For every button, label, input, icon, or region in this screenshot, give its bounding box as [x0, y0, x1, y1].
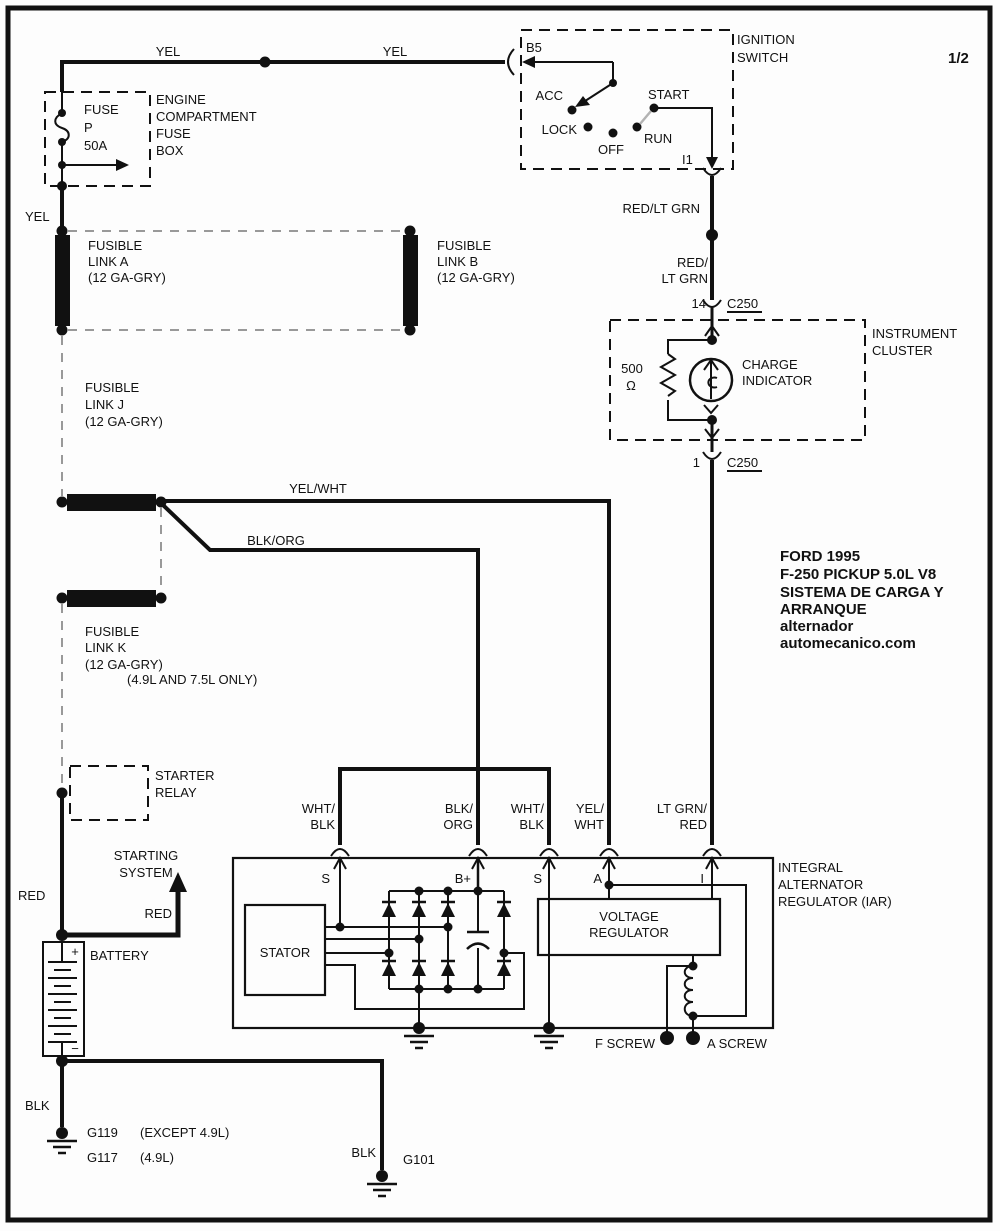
pos-start: START [648, 87, 689, 102]
off-contact [609, 129, 618, 138]
fusebox-name-3: FUSE [156, 126, 191, 141]
fusebox-name-2: COMPARTMENT [156, 109, 257, 124]
fuse-label-3: 50A [84, 138, 107, 153]
link-k-line1: FUSIBLE [85, 624, 140, 639]
pos-off: OFF [598, 142, 624, 157]
instrument-cluster: 500 Ω CHARGE INDICATOR INSTRUMENT CLUSTE… [610, 306, 957, 452]
terminal-a: A [593, 871, 602, 886]
starter-relay-label-1: STARTER [155, 768, 214, 783]
resistor-icon [661, 354, 675, 396]
c250-top-pin: 14 [692, 296, 706, 311]
link-k-note: (4.9L AND 7.5L ONLY) [127, 672, 257, 687]
iar-title-3: REGULATOR (IAR) [778, 894, 892, 909]
junction-dot [260, 57, 271, 68]
terminal-s1: S [321, 871, 330, 886]
stator: STATOR [245, 905, 524, 1009]
diode-icons-top [382, 902, 511, 917]
ignition-switch: B5 ACC LOCK OFF RUN START I1 IGNITION SW… [508, 30, 795, 169]
title-line-1: FORD 1995 [780, 548, 860, 565]
wiring-diagram-canvas: 1/2 YEL YEL FUSE P 50A ENGINE COMPARTMEN… [0, 0, 1000, 1231]
fusible-link-j: FUSIBLE LINK J (12 GA-GRY) [57, 380, 167, 511]
yel-wht-wire: YEL/WHT [163, 481, 609, 845]
lamp-label-1: CHARGE [742, 357, 798, 372]
ground-g117-note: (4.9L) [140, 1150, 174, 1165]
ground-g119-icon [56, 1127, 68, 1139]
arrow-to-acc-icon [575, 96, 590, 107]
acc-contact [568, 106, 577, 115]
label-yel-wht-b: WHT [574, 817, 604, 832]
wire-label-red-ltgrn: RED/LT GRN [622, 201, 700, 216]
link-b-line3: (12 GA-GRY) [437, 270, 515, 285]
label-wht-blk-1a: WHT/ [302, 801, 336, 816]
ground-g101: G101 [403, 1152, 435, 1167]
wire-label-yel-1: YEL [156, 44, 181, 59]
fuse-element-icon [55, 113, 69, 142]
title-line-2: F-250 PICKUP 5.0L V8 [780, 566, 936, 583]
battery-negative-wires: BLK G119 (EXCEPT 4.9L) G117 (4.9L) BLK G… [25, 1055, 435, 1196]
diode-icons-bottom [382, 961, 511, 976]
label-wht-blk-2a: WHT/ [511, 801, 545, 816]
ground-icon-2 [543, 1022, 555, 1034]
ground-icon [413, 1022, 425, 1034]
iar-title-2: ALTERNATOR [778, 877, 863, 892]
ignition-title-2: SWITCH [737, 50, 788, 65]
link-a-line2: LINK A [88, 254, 129, 269]
pos-run: RUN [644, 131, 672, 146]
terminal-s2: S [533, 871, 542, 886]
yel-feed-wire: YEL YEL [62, 44, 505, 92]
pin-i1: I1 [682, 152, 693, 167]
title-line-6: automecanico.com [780, 635, 916, 652]
link-a-line1: FUSIBLE [88, 238, 143, 253]
wire-label-blk-right: BLK [351, 1145, 376, 1160]
battery-label: BATTERY [90, 948, 149, 963]
wire-label-red-2: RED [145, 906, 172, 921]
wire-label-red-slash: RED/ [677, 255, 708, 270]
label-yel-wht-a: YEL/ [576, 801, 605, 816]
lamp-filament-icon [708, 378, 717, 388]
fusible-link-k: FUSIBLE LINK K (12 GA-GRY) (4.9L AND 7.5… [57, 590, 258, 687]
f-screw-label: F SCREW [595, 1036, 656, 1051]
fusebox-name-4: BOX [156, 143, 184, 158]
arrow-down-icon [706, 157, 718, 169]
wire-label-red-1: RED [18, 888, 45, 903]
iar-terminals: S B+ S A I [321, 858, 718, 1028]
link-j-line2: LINK J [85, 397, 124, 412]
fusebox-name-1: ENGINE [156, 92, 206, 107]
starting-system-arrow: STARTING SYSTEM RED [62, 848, 187, 935]
label-wht-blk-1b: BLK [310, 817, 335, 832]
link-b-line2: LINK B [437, 254, 478, 269]
title-line-3: SISTEMA DE CARGA Y [780, 584, 944, 601]
wiring-diagram-page: 1/2 YEL YEL FUSE P 50A ENGINE COMPARTMEN… [0, 0, 1000, 1231]
connector-c250-bottom-icon [703, 452, 721, 459]
ground-g119-note: (EXCEPT 4.9L) [140, 1125, 229, 1140]
arrow-down-chevron-icon [704, 405, 718, 413]
c250-bottom-pin: 1 [693, 455, 700, 470]
label-ltgrn-red-b: RED [680, 817, 707, 832]
c250-bottom-name: C250 [727, 455, 758, 470]
iar-grounds [404, 1022, 564, 1048]
a-screw-label: A SCREW [707, 1036, 768, 1051]
capacitor-icon [467, 932, 489, 949]
battery: + − BATTERY [43, 929, 149, 1056]
ground-g119: G119 [87, 1125, 118, 1140]
engine-fuse-box: FUSE P 50A ENGINE COMPARTMENT FUSE BOX [45, 92, 257, 191]
wire-label-blk-org: BLK/ORG [247, 533, 305, 548]
wire-label-yel-wht: YEL/WHT [289, 481, 347, 496]
ground-g117: G117 [87, 1150, 118, 1165]
link-k-line2: LINK K [85, 640, 127, 655]
lamp-label-2: INDICATOR [742, 373, 812, 388]
voltage-regulator: VOLTAGE REGULATOR [538, 899, 720, 955]
title-line-5: alternador [780, 618, 854, 635]
terminal-i: I [700, 871, 704, 886]
a-screw-dot [686, 1031, 700, 1045]
sheet-number: 1/2 [948, 50, 969, 67]
cluster-title-2: CLUSTER [872, 343, 933, 358]
label-wht-blk-2b: BLK [519, 817, 544, 832]
terminal-bplus: B+ [455, 871, 471, 886]
label-blk-org-b: ORG [443, 817, 473, 832]
wire-label-yel-3: YEL [25, 209, 50, 224]
arrow-right-icon [116, 159, 129, 171]
fusible-link-a: FUSIBLE LINK A (12 GA-GRY) [55, 226, 166, 336]
iar-connector-icons [331, 849, 721, 856]
battery-plus: + [71, 944, 79, 959]
iar-wire-labels: WHT/ BLK BLK/ ORG WHT/ BLK YEL/ WHT LT G… [302, 801, 708, 832]
starter-relay-label-2: RELAY [155, 785, 197, 800]
arrow-left-icon [522, 56, 535, 68]
pin-b5: B5 [526, 40, 542, 55]
lock-contact [584, 123, 593, 132]
battery-minus: − [71, 1041, 79, 1056]
c250-top-name: C250 [727, 296, 758, 311]
label-ltgrn-red-a: LT GRN/ [657, 801, 707, 816]
link-k-line3: (12 GA-GRY) [85, 657, 163, 672]
fuse-label-2: P [84, 120, 93, 135]
pos-acc: ACC [536, 88, 563, 103]
wire-label-blk-left: BLK [25, 1098, 50, 1113]
link-a-line3: (12 GA-GRY) [88, 270, 166, 285]
stator-label: STATOR [260, 945, 311, 960]
f-screw-dot [660, 1031, 674, 1045]
ground-g101-icon [376, 1170, 388, 1182]
pos-lock: LOCK [542, 122, 578, 137]
cluster-title-1: INSTRUMENT [872, 326, 957, 341]
link-b-line1: FUSIBLE [437, 238, 492, 253]
rectifier-bridge [382, 887, 511, 1029]
resistor-value: 500 [621, 361, 643, 376]
link-j-line1: FUSIBLE [85, 380, 140, 395]
wire-label-yel-2: YEL [383, 44, 408, 59]
a-screw-branch [605, 881, 747, 1017]
resistor-unit: Ω [626, 378, 636, 393]
switch-wiper [640, 111, 651, 124]
coil-icon [685, 966, 693, 1016]
title-line-4: ARRANQUE [780, 601, 867, 618]
red-ltgrn-wire: RED/LT GRN RED/ LT GRN 14 C250 [622, 168, 762, 312]
starting-system-1: STARTING [114, 848, 179, 863]
c250-bottom: 1 C250 [693, 452, 762, 471]
fuse-label-1: FUSE [84, 102, 119, 117]
iar-title-1: INTEGRAL [778, 860, 843, 875]
field-coil: F SCREW A SCREW [595, 955, 768, 1051]
regulator-label-2: REGULATOR [589, 925, 669, 940]
regulator-label-1: VOLTAGE [599, 909, 659, 924]
ignition-title-1: IGNITION [737, 32, 795, 47]
label-blk-org-a: BLK/ [445, 801, 474, 816]
starter-relay: STARTER RELAY [57, 766, 215, 820]
iar-box: INTEGRAL ALTERNATOR REGULATOR (IAR) S B+… [233, 858, 892, 1051]
starting-system-2: SYSTEM [119, 865, 172, 880]
link-j-line3: (12 GA-GRY) [85, 414, 163, 429]
connector-b5-icon [508, 49, 514, 75]
wire-label-ltgrn: LT GRN [662, 271, 708, 286]
fusible-link-b: FUSIBLE LINK B (12 GA-GRY) [403, 226, 515, 336]
title-block: FORD 1995 F-250 PICKUP 5.0L V8 SISTEMA D… [780, 548, 944, 652]
